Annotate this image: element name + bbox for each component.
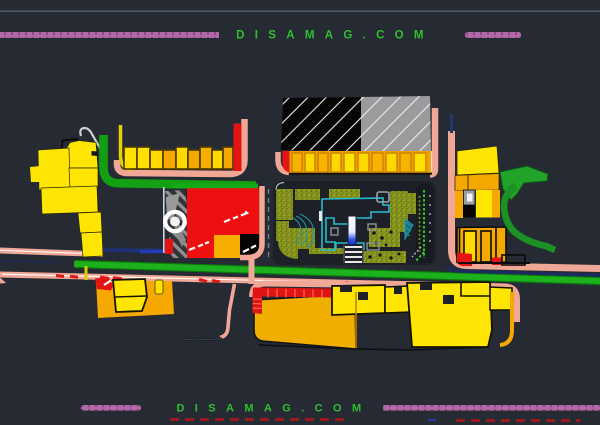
svg-text:DISAMAG.COM: DISAMAG.COM	[176, 403, 371, 415]
svg-text:DISAMAG.COM: DISAMAG.COM	[236, 30, 434, 42]
